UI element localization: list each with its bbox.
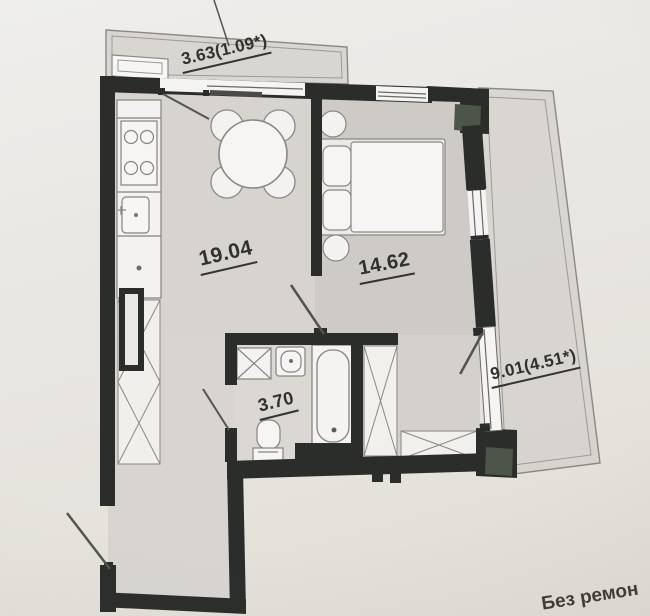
entrance-door-leaf	[67, 513, 110, 569]
counter-fixture-dot	[137, 266, 142, 271]
bathroom-sink	[276, 347, 305, 376]
column-bottom-right	[485, 447, 513, 476]
bed	[319, 139, 445, 235]
nightstand	[320, 111, 346, 137]
divider-wall	[311, 95, 322, 276]
stove	[121, 121, 157, 185]
pillow	[323, 146, 351, 186]
floor-plan-drawing	[0, 0, 650, 616]
corridor-wardrobe-tall	[364, 346, 397, 456]
blanket	[351, 142, 443, 232]
floor-plan-photo: 3.63(1.09*) 19.04 14.62 3.70 9.01(4.51*)…	[0, 0, 650, 616]
utility-shaft	[122, 291, 141, 368]
bathtub	[312, 345, 354, 448]
toilet	[253, 420, 283, 461]
entrance-door	[67, 513, 113, 570]
kitchen-sink	[118, 197, 149, 233]
nightstand	[323, 235, 349, 261]
dining-table	[211, 110, 295, 198]
balcony-window-unit	[112, 55, 168, 80]
washing-machine	[237, 348, 271, 379]
bedroom-window-band	[376, 86, 428, 102]
bedroom-side-window	[467, 186, 489, 240]
table-top	[219, 120, 287, 188]
pillow	[323, 190, 351, 230]
